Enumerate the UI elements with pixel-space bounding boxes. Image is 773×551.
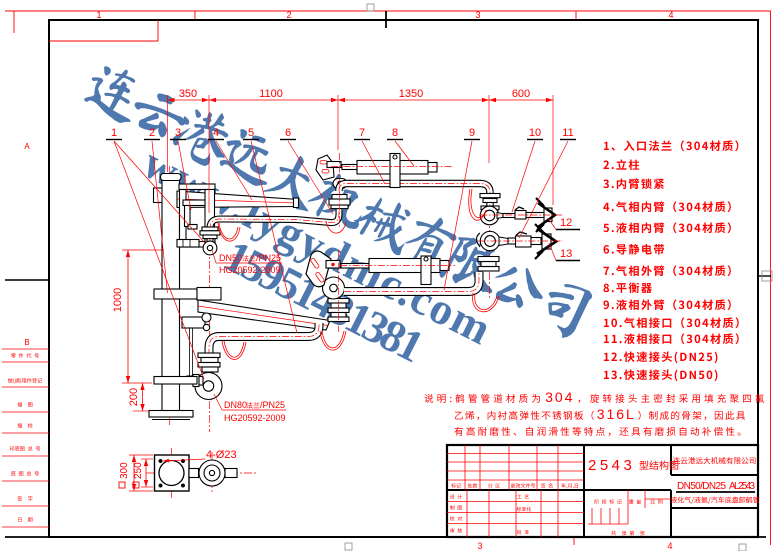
svg-text:2: 2 [149, 127, 155, 139]
svg-text:/PN25: /PN25 [256, 253, 281, 263]
svg-text:304: 304 [545, 389, 574, 405]
svg-text:600: 600 [512, 88, 530, 100]
svg-text:3: 3 [477, 541, 482, 551]
svg-text:1100: 1100 [259, 88, 283, 100]
svg-text:3: 3 [475, 10, 480, 20]
svg-text:12: 12 [560, 217, 572, 229]
svg-text:4: 4 [667, 541, 672, 551]
svg-text:HG20592-2009: HG20592-2009 [224, 413, 286, 423]
svg-text:250: 250 [133, 462, 144, 479]
svg-text:DN80: DN80 [224, 400, 247, 410]
svg-text:350: 350 [179, 88, 197, 100]
svg-text:316L: 316L [597, 406, 636, 422]
svg-text:1: 1 [111, 127, 117, 139]
svg-text:1350: 1350 [399, 88, 423, 100]
svg-text:11: 11 [562, 127, 573, 139]
svg-text:2: 2 [286, 10, 291, 20]
svg-text:5: 5 [248, 127, 254, 139]
svg-text:/PN25: /PN25 [260, 400, 285, 410]
svg-text:300: 300 [119, 462, 130, 479]
svg-text:DN50: DN50 [219, 253, 242, 263]
svg-text:1: 1 [96, 10, 101, 20]
svg-text:1000: 1000 [112, 288, 124, 312]
svg-text:4: 4 [213, 127, 219, 139]
svg-text:DN50/DN25: DN50/DN25 [677, 481, 726, 492]
svg-text:4: 4 [668, 10, 673, 20]
svg-text:4-Ø23: 4-Ø23 [206, 449, 237, 461]
svg-text:6: 6 [285, 127, 291, 139]
svg-text:AL2543: AL2543 [729, 481, 755, 492]
svg-text:3: 3 [175, 127, 181, 139]
svg-text:HG20592-2009: HG20592-2009 [219, 265, 281, 275]
svg-text:10: 10 [529, 127, 541, 139]
svg-text:8: 8 [392, 127, 398, 139]
svg-text:200: 200 [128, 388, 140, 406]
svg-text:9: 9 [469, 127, 475, 139]
svg-text:A: A [24, 142, 30, 151]
svg-text:13: 13 [560, 248, 572, 260]
svg-text:7: 7 [359, 127, 365, 139]
svg-text:2543: 2543 [588, 457, 635, 474]
svg-text:B: B [24, 338, 29, 347]
